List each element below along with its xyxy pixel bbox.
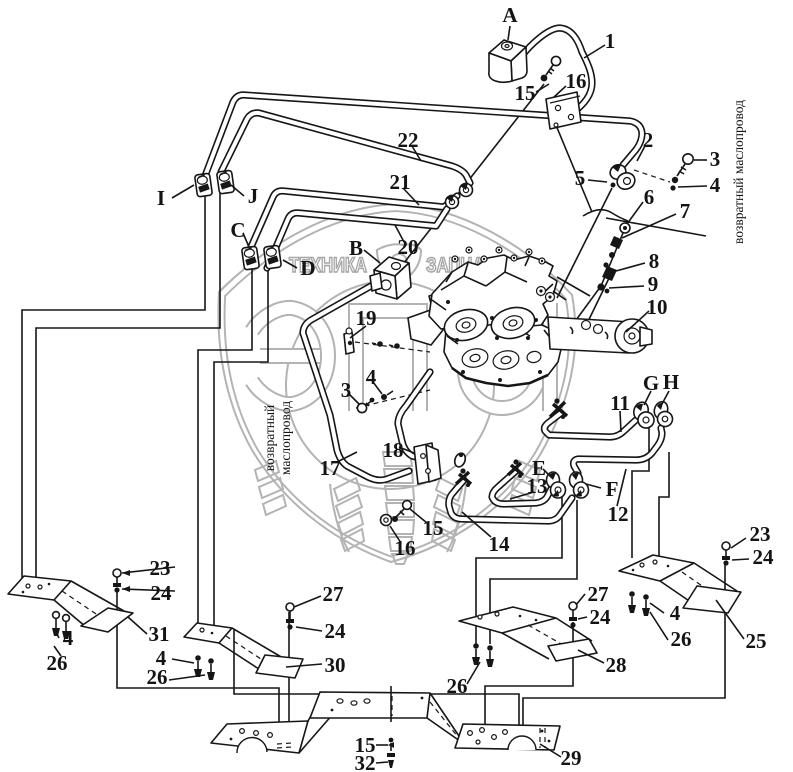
svg-text:3: 3 bbox=[710, 147, 721, 171]
svg-text:F: F bbox=[606, 477, 619, 501]
svg-text:15: 15 bbox=[423, 516, 444, 540]
svg-text:возвратный маслопровод: возвратный маслопровод bbox=[731, 100, 746, 244]
svg-text:26: 26 bbox=[671, 627, 692, 651]
svg-text:27: 27 bbox=[323, 582, 344, 606]
svg-text:29: 29 bbox=[561, 746, 582, 770]
svg-text:32: 32 bbox=[355, 751, 376, 772]
svg-text:B: B bbox=[349, 236, 363, 260]
svg-text:9: 9 bbox=[648, 272, 659, 296]
svg-text:17: 17 bbox=[320, 456, 341, 480]
svg-text:J: J bbox=[248, 184, 259, 208]
svg-text:5: 5 bbox=[575, 166, 586, 190]
svg-text:21: 21 bbox=[390, 170, 411, 194]
svg-text:4: 4 bbox=[710, 173, 721, 197]
svg-text:3: 3 bbox=[341, 378, 352, 402]
svg-text:возвратный: возвратный bbox=[262, 405, 277, 472]
svg-text:24: 24 bbox=[325, 619, 347, 643]
svg-text:4: 4 bbox=[670, 601, 681, 625]
svg-text:20: 20 bbox=[398, 235, 419, 259]
svg-text:16: 16 bbox=[566, 69, 587, 93]
svg-text:23: 23 bbox=[150, 556, 171, 580]
svg-text:маслопровод: маслопровод bbox=[278, 401, 293, 475]
svg-text:11: 11 bbox=[610, 391, 630, 415]
svg-text:C: C bbox=[230, 218, 245, 242]
svg-text:10: 10 bbox=[647, 295, 668, 319]
svg-text:I: I bbox=[157, 186, 165, 210]
svg-text:12: 12 bbox=[608, 502, 629, 526]
svg-text:30: 30 bbox=[325, 653, 346, 677]
svg-text:15: 15 bbox=[515, 81, 536, 105]
svg-text:25: 25 bbox=[746, 629, 767, 653]
svg-text:19: 19 bbox=[356, 306, 377, 330]
svg-text:23: 23 bbox=[750, 522, 771, 546]
svg-text:A: A bbox=[502, 3, 518, 27]
svg-text:27: 27 bbox=[588, 582, 609, 606]
svg-text:6: 6 bbox=[644, 185, 655, 209]
svg-text:G: G bbox=[643, 371, 659, 395]
svg-text:4: 4 bbox=[366, 365, 377, 389]
svg-text:18: 18 bbox=[383, 438, 404, 462]
svg-text:22: 22 bbox=[398, 128, 419, 152]
svg-text:H: H bbox=[663, 370, 679, 394]
svg-text:16: 16 bbox=[395, 536, 416, 560]
svg-text:D: D bbox=[300, 256, 315, 280]
svg-text:24: 24 bbox=[590, 605, 612, 629]
svg-text:24: 24 bbox=[753, 545, 775, 569]
svg-text:14: 14 bbox=[489, 532, 511, 556]
svg-text:26: 26 bbox=[147, 665, 168, 689]
svg-text:26: 26 bbox=[47, 651, 68, 675]
svg-text:24: 24 bbox=[151, 581, 173, 605]
svg-text:8: 8 bbox=[649, 249, 660, 273]
svg-text:1: 1 bbox=[605, 29, 616, 53]
svg-text:31: 31 bbox=[149, 622, 170, 646]
svg-text:2: 2 bbox=[643, 128, 654, 152]
svg-text:28: 28 bbox=[606, 653, 627, 677]
svg-text:7: 7 bbox=[680, 199, 691, 223]
svg-text:4: 4 bbox=[63, 626, 74, 650]
svg-text:13: 13 bbox=[527, 474, 548, 498]
svg-text:26: 26 bbox=[447, 674, 468, 698]
